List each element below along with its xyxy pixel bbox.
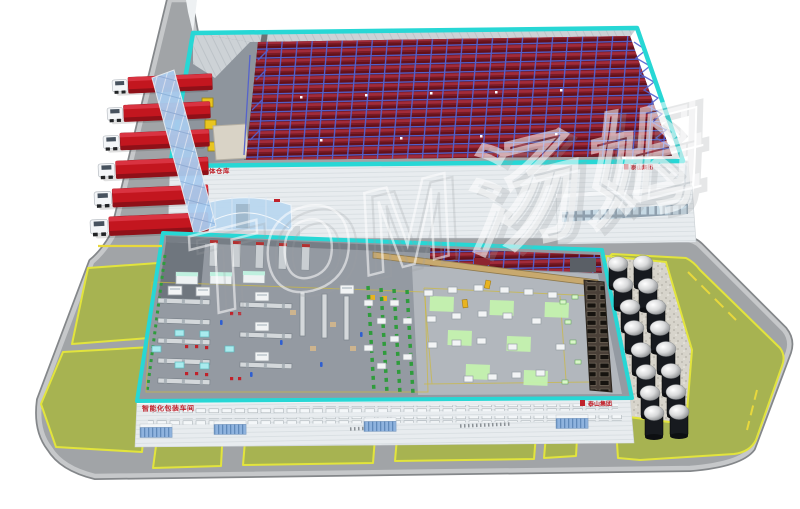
machine: [524, 289, 533, 295]
factory-rendering: 智能化立体仓库 泰山集团: [0, 0, 800, 509]
carton-stack: [330, 322, 336, 327]
worker: [280, 340, 283, 345]
dock-canopy: [556, 415, 588, 429]
silo: [669, 405, 689, 440]
machine: [488, 374, 497, 380]
machine: [464, 376, 473, 382]
machine: [428, 342, 437, 348]
machine: [474, 285, 483, 291]
equipment-red: [185, 345, 188, 348]
equipment-red: [195, 372, 198, 375]
tank: [225, 346, 234, 352]
equipment-red: [205, 373, 208, 376]
machine: [364, 345, 373, 351]
tank: [200, 363, 209, 369]
machine: [390, 336, 399, 342]
silo: [644, 406, 664, 441]
machine: [532, 318, 541, 324]
equipment-red: [205, 346, 208, 349]
machine: [477, 338, 486, 344]
machine: [452, 313, 461, 319]
tank: [175, 330, 184, 336]
equipment-red: [238, 377, 241, 380]
machine: [168, 286, 182, 295]
machine: [556, 344, 565, 350]
carton-stack: [350, 346, 356, 351]
machine: [427, 316, 436, 322]
far-doorway: [570, 258, 596, 272]
dock-canopy: [214, 421, 246, 435]
production-facade: [135, 397, 634, 447]
green-floor-zone: [544, 302, 569, 318]
equipment-red: [185, 372, 188, 375]
machine: [508, 344, 517, 350]
tank: [175, 362, 184, 368]
green-floor-zone: [429, 296, 454, 312]
machine: [377, 363, 386, 369]
equipment-red: [195, 345, 198, 348]
machine: [403, 354, 412, 360]
production-wall-label: 智能化包装车间: [142, 404, 195, 413]
machine: [377, 318, 386, 324]
machine: [536, 370, 545, 376]
machine: [512, 372, 521, 378]
machine: [503, 313, 512, 319]
machine: [478, 311, 487, 317]
forklift: [462, 299, 468, 308]
scene-canvas: 智能化立体仓库 泰山集团: [0, 0, 800, 509]
worker: [320, 362, 323, 367]
equipment-red: [230, 377, 233, 380]
machine: [255, 352, 269, 361]
machine: [452, 340, 461, 346]
tank: [152, 346, 161, 352]
machine: [548, 292, 557, 298]
worker: [360, 332, 363, 337]
dock-canopy: [364, 418, 396, 432]
dock-canopy: [140, 424, 172, 438]
machine: [403, 318, 412, 324]
carton-stack: [310, 346, 316, 351]
worker: [250, 372, 253, 377]
production-logo-mark: [580, 400, 585, 406]
machine: [500, 287, 509, 293]
